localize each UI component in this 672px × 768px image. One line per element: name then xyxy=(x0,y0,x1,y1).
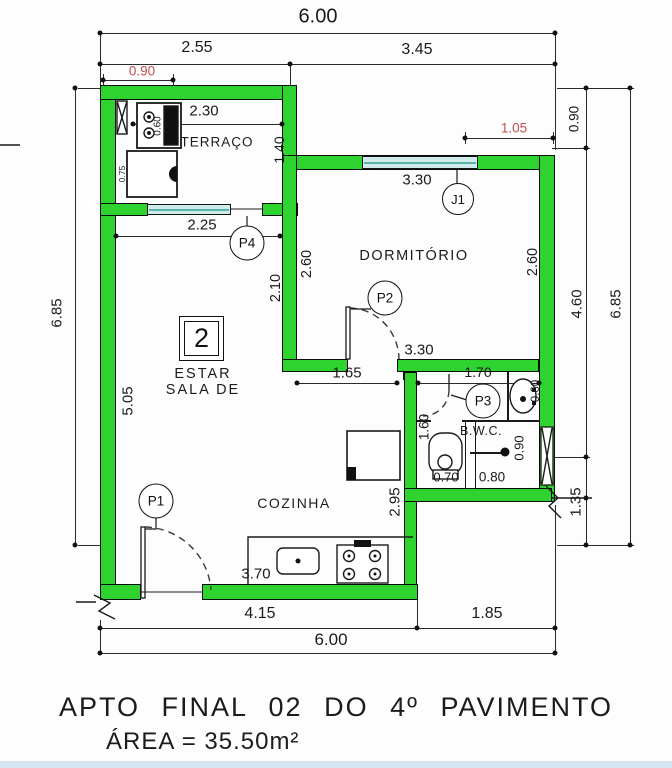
dim-bedroom-left: 2.60 xyxy=(299,250,315,278)
dim-dot xyxy=(73,543,78,548)
kitchen-sink-icon xyxy=(277,548,319,574)
dim-dot xyxy=(553,651,558,656)
dim-top-terrace: 2.55 xyxy=(181,39,212,57)
ext-line xyxy=(78,545,100,546)
wall-bwc-bottom xyxy=(404,488,552,502)
wall-bottom-left xyxy=(100,584,141,600)
dim-terrace-width: 2.30 xyxy=(189,103,218,120)
room-label-bedroom: DORMITÓRIO xyxy=(359,248,468,264)
door-tag-p2: P2 xyxy=(368,281,403,316)
ext-line xyxy=(557,88,634,89)
counter-icon xyxy=(248,537,413,584)
dim-washer-width: 0.75 xyxy=(117,166,127,183)
thresholds xyxy=(141,209,262,592)
dim-shower-width: 0.80 xyxy=(479,470,505,485)
fridge-icon xyxy=(347,431,400,480)
wall-exterior-left xyxy=(100,85,116,600)
wall-bottom-main xyxy=(202,584,418,600)
washer-icon xyxy=(127,151,177,197)
dim-dot xyxy=(584,146,589,151)
dim-dot xyxy=(551,136,556,141)
terrace-fixtures xyxy=(117,101,181,197)
dim-dot xyxy=(584,543,589,548)
dim-dot xyxy=(584,455,589,460)
dim-line-top-split xyxy=(100,64,555,65)
dim-right-total: 6.85 xyxy=(608,289,625,318)
dim-dot xyxy=(416,381,421,386)
dim-line-living-opening xyxy=(297,383,397,384)
floorplan-sheet: 6.00 2.55 3.45 0.90 1.05 6.85 0.90 4.60 … xyxy=(0,0,672,768)
dim-dot xyxy=(101,78,106,83)
dim-dot xyxy=(628,543,633,548)
dim-dot xyxy=(280,122,285,127)
door-p1-arc xyxy=(145,527,211,590)
ext-line xyxy=(555,33,556,150)
dim-line-top-total xyxy=(100,33,555,34)
dim-dot xyxy=(584,86,589,91)
dim-dot xyxy=(553,62,558,67)
ext-line xyxy=(555,505,556,655)
dim-dot xyxy=(278,234,283,239)
room-label-kitchen: COZINHA xyxy=(257,495,331,511)
wall-terrace-top xyxy=(100,85,292,100)
dim-line-left xyxy=(75,88,76,545)
unit-number: 2 xyxy=(184,321,219,356)
wall-bedroom-left xyxy=(282,155,297,372)
ext-line xyxy=(290,64,291,85)
room-label-living-2: SALA DE xyxy=(166,382,240,398)
dim-terrace-opening: 2.25 xyxy=(187,217,216,234)
window-tag-j1: J1 xyxy=(442,183,474,215)
stove-icon xyxy=(337,545,388,583)
dim-bottom-bwc: 1.85 xyxy=(471,605,502,623)
dim-dot xyxy=(98,31,103,36)
dim-dot xyxy=(98,626,103,631)
dim-dot xyxy=(114,234,119,239)
dim-dot xyxy=(171,78,176,83)
dim-top-total: 6.00 xyxy=(299,6,338,29)
wall-kitchen-bwc xyxy=(404,372,417,600)
dim-dot xyxy=(628,86,633,91)
dim-line-bottom-total xyxy=(100,653,555,654)
dim-bottom-total: 6.00 xyxy=(314,630,347,650)
dim-dot xyxy=(295,381,300,386)
unit-number-badge: 2 xyxy=(179,316,224,361)
dim-line-right-inner xyxy=(586,88,587,545)
dim-dot xyxy=(463,136,468,141)
dim-bedroom-right: 2.60 xyxy=(525,248,541,276)
dim-red-left: 0.90 xyxy=(129,64,155,79)
dim-kitchen-depth: 2.95 xyxy=(387,487,404,516)
ext-line xyxy=(557,545,634,546)
louver-window-icon xyxy=(117,101,127,134)
dim-dot xyxy=(553,626,558,631)
dim-dot xyxy=(553,31,558,36)
dim-shower-depth: 0.90 xyxy=(512,435,527,460)
dim-living-opening: 1.65 xyxy=(332,365,361,382)
door-tag-p1: P1 xyxy=(139,484,174,519)
window-j1 xyxy=(362,156,478,169)
dim-counter-length: 3.70 xyxy=(241,566,270,583)
dim-line-red-right xyxy=(465,138,553,139)
footer-strip xyxy=(0,761,672,768)
plan-title: APTO FINAL 02 DO 4º PAVIMENTO xyxy=(0,692,672,723)
wall-exterior-right xyxy=(539,155,555,502)
dim-hall-width: 1.60 xyxy=(417,414,432,440)
door-p2-arc xyxy=(350,308,399,359)
wall-terrace-divider-left xyxy=(100,203,148,216)
dim-toilet-width: 0.70 xyxy=(433,470,458,485)
room-label-bathroom: B.W.C. xyxy=(460,424,502,438)
dim-dot xyxy=(395,381,400,386)
dim-dot xyxy=(98,651,103,656)
dim-line-red-left xyxy=(103,80,173,81)
dim-living-height: 5.05 xyxy=(120,386,137,415)
dim-left-total: 6.85 xyxy=(49,298,66,327)
dim-top-bedroom: 3.45 xyxy=(401,41,432,59)
dim-dot xyxy=(131,122,136,127)
dim-tank-width: 0.60 xyxy=(153,116,164,135)
room-label-terrace: TERRAÇO xyxy=(180,135,253,150)
door-tag-p4: P4 xyxy=(230,226,265,261)
dim-bwc-width: 1.70 xyxy=(464,364,491,380)
dim-right-mid: 4.60 xyxy=(569,289,586,318)
dim-basin-width: 0.60 xyxy=(530,380,542,402)
dim-line-right-outer xyxy=(630,88,631,545)
plan-area: ÁREA = 35.50m² xyxy=(106,728,299,756)
dim-dot xyxy=(415,626,420,631)
partition-basin-nook xyxy=(507,372,509,421)
dim-bedroom-width: 3.30 xyxy=(404,342,433,359)
door-p1-leaf xyxy=(141,527,145,598)
dim-dot xyxy=(73,86,78,91)
door-tag-p3: P3 xyxy=(466,384,501,419)
dim-right-top: 0.90 xyxy=(567,106,582,132)
dim-living-upper: 2.10 xyxy=(268,274,284,302)
dim-bedroom-window: 3.30 xyxy=(402,172,431,189)
ext-line xyxy=(78,88,100,89)
dim-terrace-depth: 1.40 xyxy=(271,136,287,163)
window-terrace xyxy=(147,204,231,215)
dim-red-right: 1.05 xyxy=(501,121,527,136)
dim-bottom-kitchen: 4.15 xyxy=(244,605,275,623)
dim-dot xyxy=(98,62,103,67)
room-label-living-1: ESTAR xyxy=(174,366,231,382)
dim-dot xyxy=(288,62,293,67)
door-p3-arc xyxy=(423,390,449,416)
shower-head-icon xyxy=(501,448,510,457)
door-p2-leaf xyxy=(346,307,350,359)
dim-right-bottom: 1.35 xyxy=(568,487,585,516)
